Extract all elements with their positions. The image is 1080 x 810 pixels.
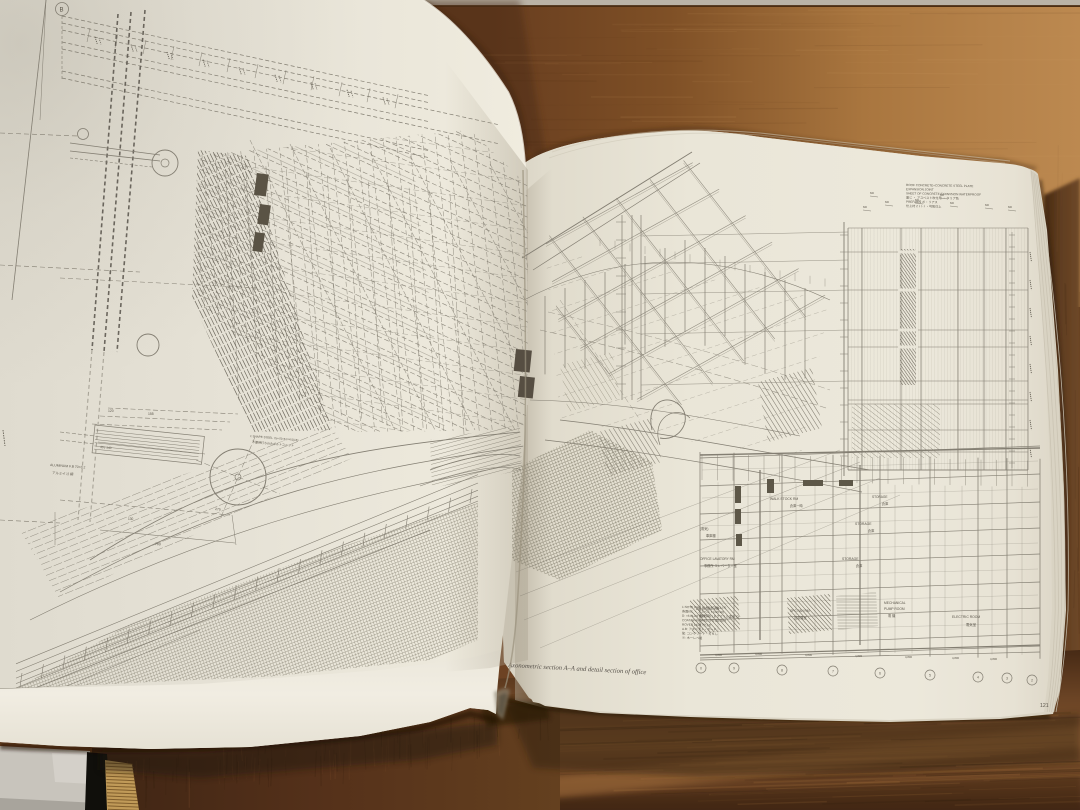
svg-text:6: 6 [879, 672, 881, 676]
svg-text:STORAGE: STORAGE [855, 522, 872, 526]
svg-text:5: 5 [929, 674, 931, 678]
svg-text:600: 600 [985, 204, 990, 207]
svg-text:B: B [60, 8, 64, 14]
svg-text:仕上材 2 ﾄ ﾄ ﾄ ・勾配仕上: 仕上材 2 ﾄ ﾄ ﾄ ・勾配仕上 [906, 203, 942, 209]
svg-text:4,800: 4,800 [855, 654, 862, 658]
svg-text:倉庫: 倉庫 [856, 563, 863, 568]
svg-text:4,800: 4,800 [755, 652, 762, 656]
svg-text:760: 760 [155, 542, 161, 546]
svg-text:SPC FAN RM: SPC FAN RM [790, 609, 810, 613]
svg-text:8: 8 [781, 669, 783, 673]
svg-text:4,800: 4,800 [805, 653, 812, 657]
svg-text:600: 600 [863, 206, 868, 209]
svg-text:ELECTRIC ROOM: ELECTRIC ROOM [952, 615, 980, 619]
svg-text:STORAGE: STORAGE [872, 495, 888, 499]
svg-text:120: 120 [108, 409, 114, 413]
svg-text:4,800: 4,800 [990, 657, 997, 661]
svg-text:WALK STOCK RM: WALK STOCK RM [770, 497, 798, 501]
svg-text:3: 3 [1006, 677, 1008, 681]
svg-text:600: 600 [1008, 206, 1013, 209]
svg-text:600: 600 [885, 201, 890, 204]
svg-text:※: 木一レベ組: ※: 木一レベ組 [682, 635, 702, 640]
svg-text:倉庫一時: 倉庫一時 [790, 503, 804, 508]
svg-text:7: 7 [832, 670, 834, 674]
svg-text:倉庫: 倉庫 [868, 528, 875, 533]
svg-text:STORAGE: STORAGE [842, 557, 859, 561]
svg-text:MECHANICAL: MECHANICAL [884, 601, 906, 605]
svg-text:車庫棚: 車庫棚 [706, 533, 716, 538]
svg-text:600: 600 [870, 192, 875, 195]
svg-text:(電気): (電気) [700, 526, 709, 531]
svg-text:2: 2 [1031, 679, 1033, 683]
svg-text:130: 130 [128, 517, 134, 521]
svg-text:電気室: 電気室 [966, 622, 977, 627]
svg-text:155: 155 [148, 412, 154, 416]
svg-text:OFFICE LAVATORY RM: OFFICE LAVATORY RM [700, 557, 735, 561]
svg-text:275: 275 [215, 507, 221, 512]
svg-text:事務所 エレベーター室: 事務所 エレベーター室 [704, 563, 737, 568]
svg-text:4,800: 4,800 [905, 655, 912, 659]
svg-text:4,800: 4,800 [715, 653, 722, 657]
svg-text:PUMP ROOM: PUMP ROOM [884, 607, 905, 611]
svg-text:電 機: 電 機 [888, 613, 896, 618]
svg-text:0: 0 [700, 667, 702, 671]
svg-text:121: 121 [1040, 703, 1049, 709]
svg-text:600: 600 [950, 202, 955, 205]
svg-text:送風機室: 送風機室 [794, 615, 807, 620]
svg-text:600: 600 [915, 199, 920, 202]
svg-text:倉庫: 倉庫 [882, 501, 889, 506]
svg-text:600: 600 [940, 194, 945, 197]
svg-text:4: 4 [977, 676, 979, 680]
svg-text:9: 9 [733, 667, 735, 671]
svg-text:4,800: 4,800 [952, 656, 959, 660]
